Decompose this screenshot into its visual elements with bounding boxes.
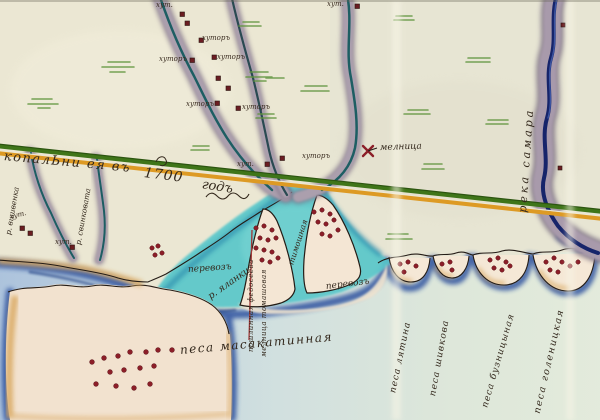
spit-label-lyatina: песа лятина <box>389 321 413 394</box>
historical-map: копалЬни ея въ 1700 годъ мелница хут. ху… <box>0 0 600 420</box>
khutor-label: хуторъ <box>202 35 230 42</box>
ferry-label-right: перевозъ <box>325 278 370 292</box>
khutor-label: хуторъ <box>302 153 330 160</box>
khutor-label: хут. <box>55 239 72 246</box>
peninsula-label-timoshna: тимошная <box>287 219 309 266</box>
khutor-label: хут. <box>237 161 254 168</box>
khutor-label: хуторъ <box>242 104 270 111</box>
boundary-line-year: 1700 <box>143 166 184 185</box>
river-label-left-b: р. свинковата <box>75 188 92 246</box>
khutor-label: хут. <box>156 2 173 9</box>
river-label-right: река самара <box>517 107 535 213</box>
ferry-label-left: перевозъ <box>188 263 232 275</box>
khutor-label: хуторъ <box>186 101 214 108</box>
khutor-label: хуторъ <box>217 54 245 61</box>
mill-label: мелница <box>380 143 422 153</box>
spit-label-buznitsynaya: песа бузницыная <box>481 313 517 409</box>
spit-label-shivkova: песа шивкова <box>429 319 451 397</box>
boundary-line-label: копалЬни ея въ <box>3 150 131 175</box>
boundary-line-year-word: годъ <box>201 178 234 196</box>
spit-label-masakatinnaya: песа масакатинная <box>179 331 333 356</box>
map-labels: копалЬни ея въ 1700 годъ мелница хут. ху… <box>0 0 600 420</box>
khutor-label: хуторъ <box>159 56 187 63</box>
spit-label-golenitskaya: песа голеницкая <box>533 308 566 414</box>
khutor-label: хут. <box>327 1 344 8</box>
